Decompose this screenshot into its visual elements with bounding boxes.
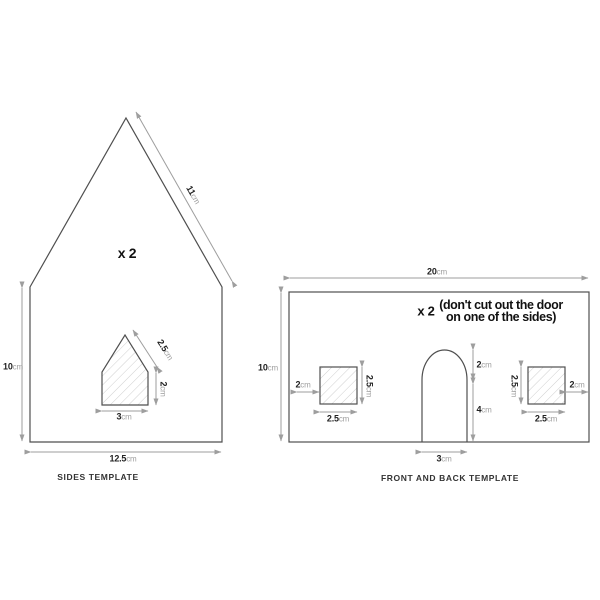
dimension-unit: cm: [481, 406, 491, 415]
dimension-unit: cm: [268, 364, 278, 373]
dimension-value: 10: [258, 363, 268, 373]
gingerbread-house-template-diagram: 11cm 10cm 12.5cm 2.5cm 2cm 3cm x 2 SIDES…: [0, 0, 600, 600]
dimension-unit: cm: [300, 381, 310, 390]
front-door-cutout: [422, 350, 467, 442]
dimension-unit: cm: [574, 381, 584, 390]
dimension-unit: cm: [121, 413, 131, 422]
front-door-note-line2: on one of the sides): [437, 311, 565, 323]
dimension-unit: cm: [441, 455, 451, 464]
dimension-value: 12.5: [110, 454, 127, 464]
front-quantity-label: x 2: [417, 305, 434, 318]
dimension-value: 20: [427, 267, 437, 277]
dimension-unit: cm: [13, 363, 23, 372]
dimension-unit: cm: [126, 455, 136, 464]
front-left-window-height-dimension: 2.5cm: [365, 375, 374, 397]
sides-window-cutout: [102, 335, 148, 405]
dimension-unit: cm: [339, 415, 349, 424]
sides-window-base-dimension: 3cm: [116, 413, 131, 422]
sides-quantity-label: x 2: [118, 246, 137, 260]
sides-window-side-dimension: 2cm: [159, 381, 168, 396]
sides-wall-dimension: 10cm: [3, 363, 23, 372]
front-right-window-cutout: [528, 367, 565, 404]
sides-template-caption: SIDES TEMPLATE: [57, 473, 138, 482]
dimension-value: 2.5: [535, 414, 547, 424]
front-left-window-cutout: [320, 367, 357, 404]
front-door-width-dimension: 3cm: [436, 455, 451, 464]
dimension-unit: cm: [510, 387, 519, 397]
dimension-unit: cm: [365, 387, 374, 397]
front-door-arch-dimension: 2cm: [476, 361, 491, 370]
front-door-body-dimension: 4cm: [476, 406, 491, 415]
front-left-window-width-dimension: 2.5cm: [327, 415, 349, 424]
sides-roof-dim-line: [136, 112, 232, 281]
dimension-unit: cm: [159, 386, 168, 396]
dimension-value: 2.5: [365, 375, 375, 387]
front-left-window-offset-dimension: 2cm: [295, 381, 310, 390]
front-right-window-offset-dimension: 2cm: [569, 381, 584, 390]
dimension-unit: cm: [481, 361, 491, 370]
dimension-unit: cm: [437, 268, 447, 277]
front-back-template-caption: FRONT AND BACK TEMPLATE: [381, 474, 519, 483]
dimension-value: 2.5: [327, 414, 339, 424]
front-right-window-height-dimension: 2.5cm: [510, 375, 519, 397]
front-door-note: (don't cut out the door on one of the si…: [437, 299, 565, 323]
front-top-dimension: 20cm: [427, 268, 447, 277]
front-right-window-width-dimension: 2.5cm: [535, 415, 557, 424]
dimension-value: 2.5: [510, 375, 520, 387]
sides-base-dimension: 12.5cm: [110, 455, 137, 464]
front-wall-dimension: 10cm: [258, 364, 278, 373]
dimension-unit: cm: [547, 415, 557, 424]
dimension-value: 10: [3, 362, 13, 372]
